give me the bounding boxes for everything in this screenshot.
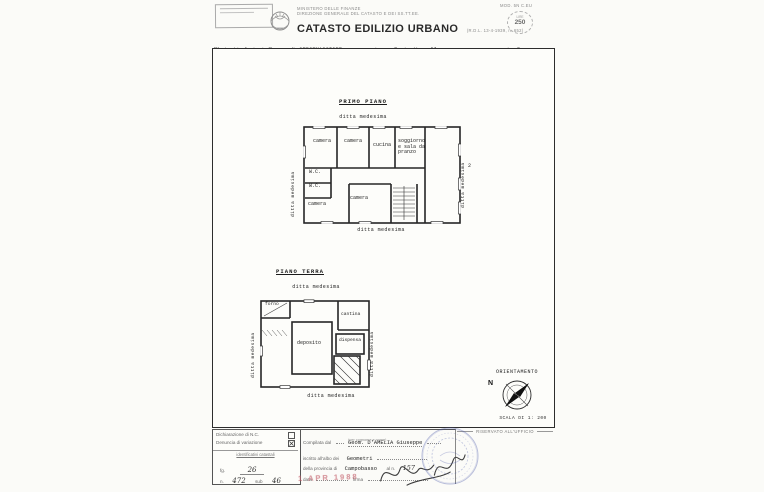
piano-terra-boundary-top: ditta medesima: [286, 284, 346, 290]
declaration-row2-checkbox: [288, 440, 295, 447]
round-office-stamp: [418, 424, 482, 488]
piano-terra-boundary-bottom: ditta medesima: [301, 393, 361, 399]
office-title: RISERVATO ALL'UFFICIO: [476, 429, 534, 434]
piano-terra-boundary-left: ditta medesima: [251, 326, 256, 378]
sub-label: sub: [255, 479, 262, 484]
n-label: n.: [220, 479, 224, 484]
room-label: dispensa: [339, 338, 361, 344]
cadastral-ids-title: identificativi catastali: [212, 452, 299, 457]
state-emblem-icon: [266, 8, 294, 36]
access-mark: 2: [468, 164, 471, 170]
declaration-row1-label: Dichiarazione di N.C.: [216, 432, 282, 438]
declaration-divider: [213, 450, 298, 451]
declaration-row1-checkbox: [288, 432, 295, 439]
ministry-name: MINISTERO DELLE FINANZE DIREZIONE GENERA…: [297, 6, 420, 16]
compiler-note: (per cognome e nome): [348, 438, 386, 442]
primo-piano-boundary-top: ditta medesima: [333, 114, 393, 120]
primo-piano-boundary-bottom: ditta medesima: [351, 227, 411, 233]
revenue-stamp-value: 250: [508, 19, 532, 26]
n-value: 472: [232, 477, 245, 485]
room-label: soggiorno e sala da pranzo: [398, 139, 426, 156]
revenue-stamp: LIRE 250: [507, 11, 533, 34]
piano-terra-title: PIANO TERRA: [270, 268, 330, 275]
scanned-cadastral-form: MINISTERO DELLE FINANZE DIREZIONE GENERA…: [0, 0, 764, 492]
room-label: forno: [265, 302, 279, 308]
model-code: MOD. 5N C.EU: [500, 3, 532, 8]
particella-row: n. 472 sub 46: [220, 470, 281, 488]
north-label: N: [488, 380, 493, 387]
office-rule-right: [537, 431, 553, 432]
form-title: CATASTO EDILIZIO URBANO: [297, 23, 458, 35]
primo-piano-boundary-left: ditta medesima: [291, 165, 296, 217]
arrival-stamp-box: [215, 4, 273, 29]
sub-value: 46: [272, 477, 281, 485]
room-label: camera: [350, 196, 368, 202]
compass-rose-icon: [498, 379, 536, 413]
room-label: deposito: [297, 341, 321, 347]
primo-piano-title: PRIMO PIANO: [333, 98, 393, 105]
room-label: cantina: [341, 312, 360, 318]
orientation-title: ORIENTAMENTO: [487, 369, 547, 375]
scale-label: SCALA DI 1: 200: [492, 416, 554, 421]
room-label: camera: [308, 139, 336, 145]
piano-terra-boundary-right: ditta medesima: [370, 325, 375, 377]
room-label: cucina: [370, 143, 394, 149]
room-label: camera: [308, 202, 326, 208]
check-mark-icon: [289, 441, 294, 446]
room-label: W.C.: [309, 184, 321, 190]
primo-piano-boundary-right: ditta medesima: [461, 156, 466, 208]
stamp-line: [220, 12, 254, 13]
compiled-by-label: Compilata dal: [303, 440, 331, 445]
form-title-row: CATASTO EDILIZIO URBANO (R.D.L. 13-4-193…: [297, 19, 524, 37]
room-label: camera: [340, 139, 366, 145]
ministry-line2: DIREZIONE GENERALE DEL CATASTO E DEI SS.…: [297, 11, 420, 16]
stamp-line: [220, 8, 268, 9]
room-label: W.C.: [309, 170, 321, 176]
declaration-row2-label: Denuncia di variazione: [216, 440, 282, 446]
